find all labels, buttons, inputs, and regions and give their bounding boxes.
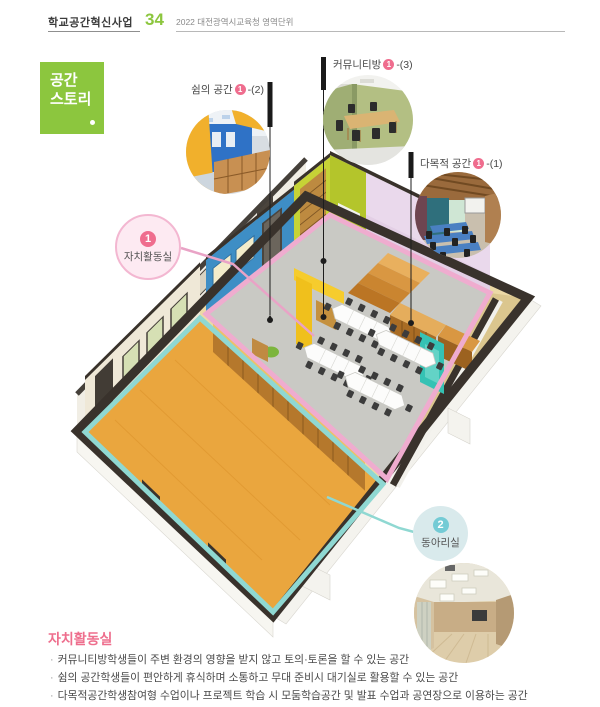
callout-community-number-icon: 1 <box>383 59 394 70</box>
report-page: 학교공간혁신사업 34 2022 대전광역시교육청 영역단위 공간 스토리 <box>0 0 600 707</box>
callout-multipurpose-label: 다목적 공간 <box>420 156 471 171</box>
callout-rest-suffix: -(2) <box>248 84 264 96</box>
description-list: ·커뮤니티방학생들이 주변 환경의 영향을 받지 않고 토의·토론을 할 수 있… <box>50 651 590 705</box>
callout-multipurpose-space: 다목적 공간 1 -(1) <box>420 156 503 171</box>
callout-community-label: 커뮤니티방 <box>333 57 381 72</box>
callout-community-room: 커뮤니티방 1 -(3) <box>333 57 413 72</box>
club-room-photo <box>414 563 514 663</box>
callout-rest-label: 쉼의 공간 <box>191 82 233 97</box>
council-room-badge-label: 자치활동실 <box>124 249 172 264</box>
description-bullet: ·쉼의 공간학생들이 편안하게 휴식하며 소통하고 무대 준비시 대기실로 활용… <box>50 669 590 687</box>
council-room-badge: 1 자치활동실 <box>115 214 181 280</box>
description-bullet: ·커뮤니티방학생들이 주변 환경의 영향을 받지 않고 토의·토론을 할 수 있… <box>50 651 590 669</box>
club-room-badge-label: 동아리실 <box>421 535 460 550</box>
club-room-badge: 2 동아리실 <box>413 506 468 561</box>
rest-space-photo <box>186 104 270 196</box>
callout-multipurpose-suffix: -(1) <box>486 158 502 170</box>
callout-multipurpose-number-icon: 1 <box>473 158 484 169</box>
callout-rest-space: 쉼의 공간 1 -(2) <box>152 82 264 97</box>
callout-community-suffix: -(3) <box>396 59 412 71</box>
description-bullet: ·다목적공간학생참여형 수업이나 프로젝트 학습 시 모둠학습공간 및 발표 수… <box>50 687 590 705</box>
callout-rest-number-icon: 1 <box>235 84 246 95</box>
community-room-photo <box>323 75 413 165</box>
floor-plan-illustration <box>0 0 600 707</box>
council-room-number-icon: 1 <box>140 231 156 247</box>
description-title: 자치활동실 <box>48 629 112 649</box>
club-room-number-icon: 2 <box>433 517 449 533</box>
